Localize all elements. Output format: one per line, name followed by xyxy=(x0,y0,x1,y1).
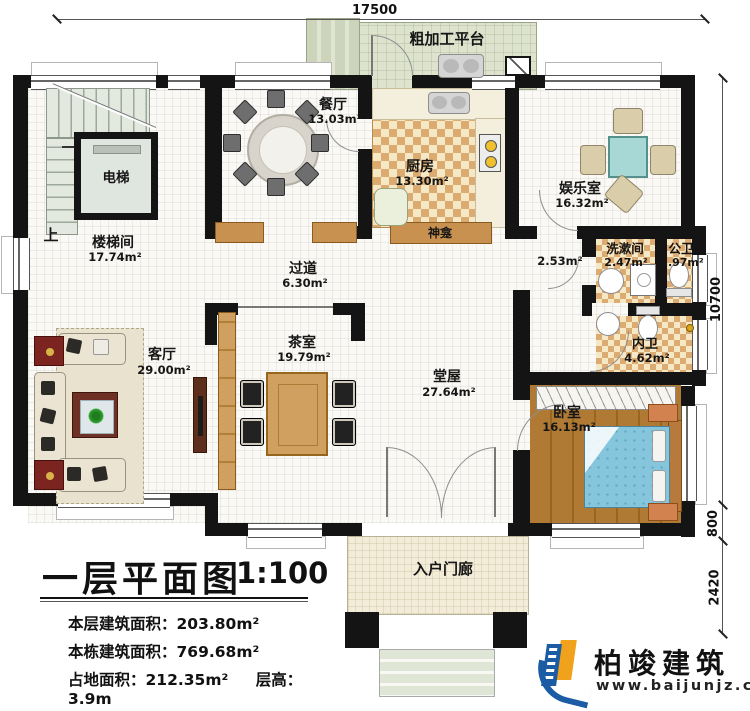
wall-segment xyxy=(582,285,596,303)
room-label-public-wc: 公卫 xyxy=(668,243,693,256)
dining-chair xyxy=(223,134,241,152)
room-label-hallway: 过道 xyxy=(289,262,317,276)
wall-segment xyxy=(582,239,596,257)
chair xyxy=(650,145,676,175)
stat-value: 203.80m² xyxy=(177,615,260,633)
sink-bowl xyxy=(463,59,479,73)
wall-segment xyxy=(333,303,365,315)
wall-segment xyxy=(218,523,248,536)
stat-land-area: 占地面积：212.35m² 层高：3.9m xyxy=(68,668,340,708)
dimension-right-lower: 2420 xyxy=(708,569,723,605)
game-table xyxy=(608,136,648,178)
decor-dot xyxy=(46,472,54,480)
room-area-corridor: 2.53m² xyxy=(537,256,582,268)
window xyxy=(168,75,200,90)
logo-building-icon xyxy=(536,640,588,696)
stat-building-area: 本栋建筑面积：769.68m² xyxy=(68,640,259,662)
dimension-line-top xyxy=(57,19,705,20)
wall-segment xyxy=(13,75,28,238)
elevator-label: 电梯 xyxy=(103,172,130,186)
dining-chair xyxy=(267,178,285,196)
room-area-washroom: 2.47m² xyxy=(604,257,647,268)
cushion xyxy=(41,381,55,395)
wall-segment xyxy=(640,523,695,536)
dimension-tick xyxy=(718,536,728,546)
room-label-stair-hall: 楼梯间 xyxy=(92,236,134,250)
sideboard xyxy=(312,222,357,243)
stat-value: 212.35m² xyxy=(146,671,229,689)
wall-segment xyxy=(582,303,592,316)
chair xyxy=(332,380,356,408)
stat-value: 3.9m xyxy=(68,690,112,708)
up-label: 上 xyxy=(43,228,58,243)
sofa xyxy=(34,372,66,466)
corner-table xyxy=(34,460,64,490)
coffee-table xyxy=(72,392,118,438)
window-sill xyxy=(56,506,174,520)
stat-label: 占地面积： xyxy=(68,671,146,689)
wall-segment xyxy=(660,75,695,88)
wall-segment xyxy=(358,149,372,226)
stat-label: 层高： xyxy=(256,671,303,689)
dining-chair xyxy=(267,90,285,108)
cushion xyxy=(67,467,81,481)
burner xyxy=(485,140,497,152)
cushion xyxy=(66,338,83,355)
room-area-inner-wc: 4.62m² xyxy=(624,353,669,365)
tv-cabinet xyxy=(193,377,207,453)
window xyxy=(552,523,640,538)
logo-website: www.baijunjz.com xyxy=(596,678,750,694)
room-area-tea: 19.79m² xyxy=(277,352,330,364)
wall-segment xyxy=(13,290,28,493)
sink-icon xyxy=(598,268,624,294)
nightstand xyxy=(648,503,678,521)
dimension-right-mid: 800 xyxy=(706,510,721,537)
room-area-main-hall: 27.64m² xyxy=(422,387,475,399)
sink-bowl xyxy=(451,96,466,109)
chair xyxy=(332,418,356,446)
plan-scale: 1:100 xyxy=(236,556,328,590)
wall-segment xyxy=(205,493,218,536)
porch-steps xyxy=(379,649,495,697)
chair xyxy=(240,418,264,446)
tea-cabinet xyxy=(218,312,236,490)
logo-company: 柏竣建筑 xyxy=(594,642,730,682)
wall-segment xyxy=(355,226,372,239)
dimension-tick xyxy=(718,73,728,83)
washer-drum xyxy=(637,273,651,287)
room-label-platform: 粗加工平台 xyxy=(409,32,484,47)
window xyxy=(235,75,330,90)
room-area-kitchen: 13.30m² xyxy=(395,176,448,188)
room-label-inner-wc: 内卫 xyxy=(632,338,658,351)
porch-pillar xyxy=(345,612,379,648)
title-underline xyxy=(40,597,308,599)
sofa xyxy=(58,458,126,492)
stat-label: 本层建筑面积： xyxy=(68,615,177,633)
window xyxy=(692,320,708,370)
chair xyxy=(613,108,643,134)
plant-icon xyxy=(88,408,104,424)
wall-segment xyxy=(530,372,706,385)
shrine-label: 神龛 xyxy=(428,227,452,239)
burner xyxy=(485,156,497,168)
vent-line xyxy=(507,58,529,74)
wall-segment xyxy=(351,315,365,341)
wall-segment xyxy=(330,75,372,88)
stat-value: 769.68m² xyxy=(177,643,260,661)
dimension-top: 17500 xyxy=(352,3,397,18)
room-label-kitchen: 厨房 xyxy=(406,160,434,174)
window-sill xyxy=(545,62,662,76)
room-label-main-hall: 堂屋 xyxy=(433,370,461,384)
wall-segment xyxy=(508,523,552,536)
toilet-tank xyxy=(636,306,660,315)
nightstand xyxy=(648,404,678,422)
chair xyxy=(580,145,606,175)
sink-icon xyxy=(438,54,484,78)
room-label-washroom: 洗漱间 xyxy=(606,243,644,256)
corner-table xyxy=(34,336,64,366)
wall-segment xyxy=(577,226,706,239)
room-area-entertainment: 16.32m² xyxy=(555,198,608,210)
wall-segment xyxy=(13,493,58,506)
room-area-living: 29.00m² xyxy=(137,365,190,377)
wall-segment xyxy=(681,88,695,233)
logo: 柏竣建筑 www.baijunjz.com xyxy=(536,636,746,702)
wall-segment xyxy=(200,75,235,88)
cushion xyxy=(40,408,57,425)
sofa xyxy=(58,333,126,365)
room-area-stair-hall: 17.74m² xyxy=(88,252,141,264)
cushion xyxy=(92,466,108,482)
bed-headboard xyxy=(668,420,682,512)
tea-table xyxy=(266,372,328,456)
wall-segment xyxy=(205,303,217,345)
window-sill xyxy=(235,62,332,76)
toilet-tank xyxy=(666,288,692,297)
dining-chair xyxy=(311,134,329,152)
shower-drain-icon xyxy=(686,324,694,332)
wall-segment xyxy=(205,88,222,226)
wall-segment xyxy=(505,226,537,239)
decor-dot xyxy=(46,348,54,356)
wall-segment xyxy=(513,290,530,400)
dimension-tick xyxy=(718,500,728,510)
window xyxy=(13,238,30,290)
room-area-bedroom: 16.13m² xyxy=(542,422,595,434)
stove-icon xyxy=(479,134,501,172)
sink-bowl xyxy=(432,96,447,109)
sink-bowl xyxy=(443,59,459,73)
pillow xyxy=(652,470,666,502)
chair xyxy=(240,380,264,408)
window xyxy=(248,523,322,538)
cushion xyxy=(41,437,55,451)
room-label-entertainment: 娱乐室 xyxy=(559,182,601,196)
room-area-public-wc: 1.97m² xyxy=(660,257,703,268)
window xyxy=(545,75,660,90)
dimension-line-right xyxy=(722,78,723,635)
floor-plan: 柏竣建筑 www.baijunjz.com 柏竣建筑 www.baijunjz.… xyxy=(0,0,750,711)
room-label-bedroom: 卧室 xyxy=(553,406,581,420)
room-label-tea: 茶室 xyxy=(288,336,316,350)
plan-title: 一层平面图 xyxy=(42,550,242,602)
cushion xyxy=(93,339,109,355)
wall-segment xyxy=(515,75,545,88)
vent-box-icon xyxy=(505,56,531,76)
pillow xyxy=(652,430,666,462)
stat-floor-area: 本层建筑面积：203.80m² xyxy=(68,612,259,634)
porch-pillar xyxy=(493,612,527,648)
room-label-porch: 入户门廊 xyxy=(413,562,473,577)
wall-segment xyxy=(322,523,362,536)
window xyxy=(681,406,697,501)
window-sill xyxy=(31,62,158,76)
sideboard xyxy=(215,222,264,243)
title-block: 一层平面图 1:100 本层建筑面积：203.80m² 本栋建筑面积：769.6… xyxy=(40,550,340,700)
wall-segment xyxy=(513,450,530,523)
sink-icon xyxy=(428,92,470,114)
room-area-dining: 13.03m² xyxy=(308,114,361,126)
dimension-right-upper: 10700 xyxy=(709,277,724,322)
stat-label: 本栋建筑面积： xyxy=(68,643,177,661)
table-inlay xyxy=(278,384,318,446)
opening-line xyxy=(238,306,333,308)
room-area-hallway: 6.30m² xyxy=(282,278,327,290)
stairs-upper xyxy=(46,88,150,138)
wall-segment xyxy=(156,75,168,88)
elevator-door xyxy=(93,145,141,154)
tv-icon xyxy=(198,396,203,436)
title-underline-2 xyxy=(40,601,308,602)
fridge xyxy=(374,188,408,226)
room-label-dining: 餐厅 xyxy=(319,98,347,112)
room-label-living: 客厅 xyxy=(148,348,176,362)
wall-segment xyxy=(505,88,519,226)
wall-segment xyxy=(681,386,695,406)
